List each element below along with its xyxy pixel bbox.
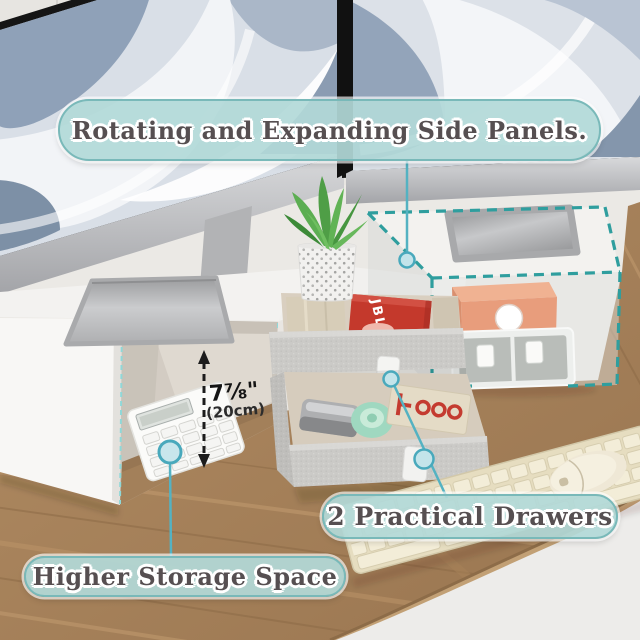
callout-panels: Rotating and Expanding Side Panels. [58,99,601,161]
mini-drawer-handle-left [477,345,495,368]
plant-pot [298,243,356,301]
callout-dot-storage [159,441,181,463]
callout-dot-drawer-top [384,372,399,387]
monitor-base [66,278,232,344]
callout-storage: Higher Storage Space [24,556,346,597]
callout-line-storage [170,462,171,556]
product-photo-stage: JBL [0,0,640,640]
riser-front-face [0,318,122,505]
mini-drawer-unit [451,328,575,389]
height-measurement: 7⅞" (20cm) [203,378,265,422]
mini-drawer-handle-right [525,341,543,364]
fabric-drawer-bottom [270,368,490,487]
callout-drawers-label: 2 Practical Drawers [327,502,612,531]
callout-storage-label: Higher Storage Space [33,562,338,591]
callout-panels-label: Rotating and Expanding Side Panels. [72,116,587,145]
product-photo: JBL [0,0,640,640]
callout-dot-panels [400,253,415,268]
laptop [448,208,577,259]
callout-dot-drawer-bottom [415,450,434,469]
callout-drawers: 2 Practical Drawers [322,494,618,539]
